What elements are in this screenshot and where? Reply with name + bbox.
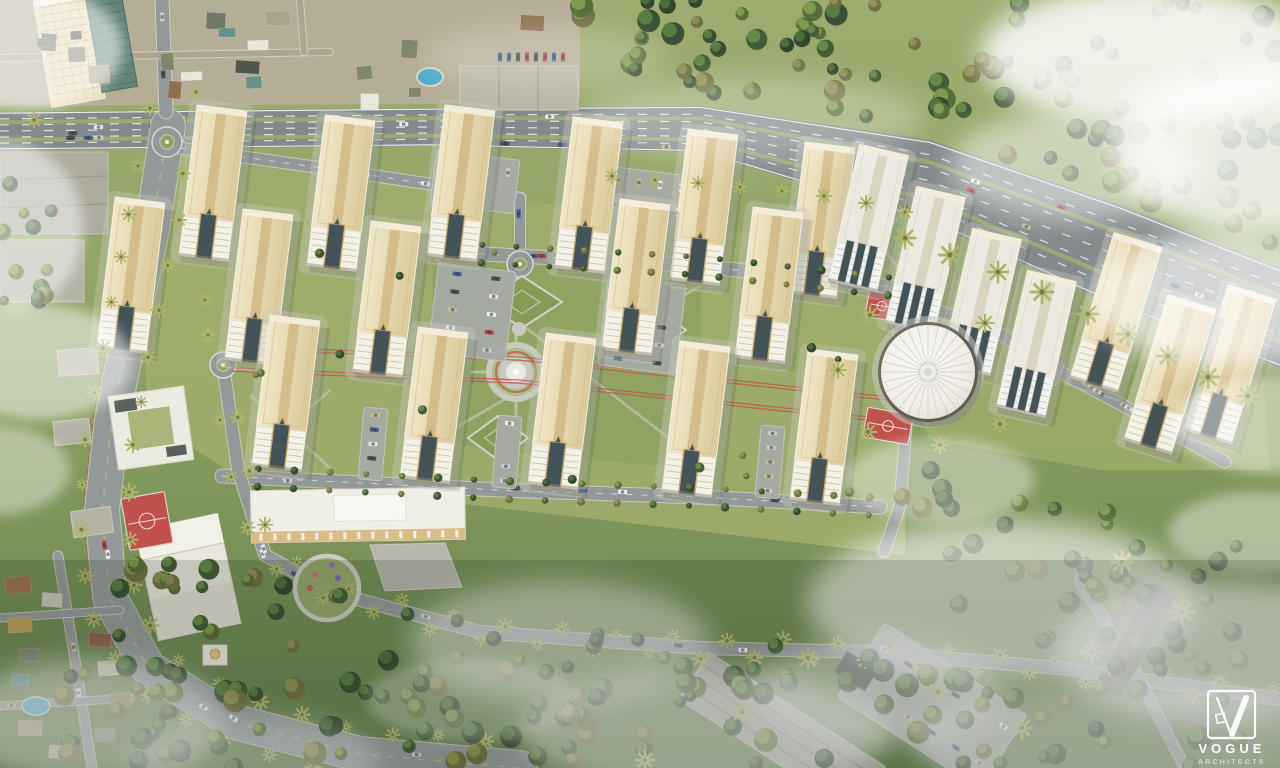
bottom-vignette <box>0 560 1280 768</box>
aerial-masterplan-render: VOGUE ARCHITECTS <box>0 0 1280 768</box>
scene-canvas: VOGUE ARCHITECTS <box>0 0 1280 768</box>
logo-brand-text: VOGUE <box>1199 741 1266 756</box>
logo-subtitle-text: ARCHITECTS <box>1198 759 1265 766</box>
clouds-layer <box>0 0 1280 768</box>
